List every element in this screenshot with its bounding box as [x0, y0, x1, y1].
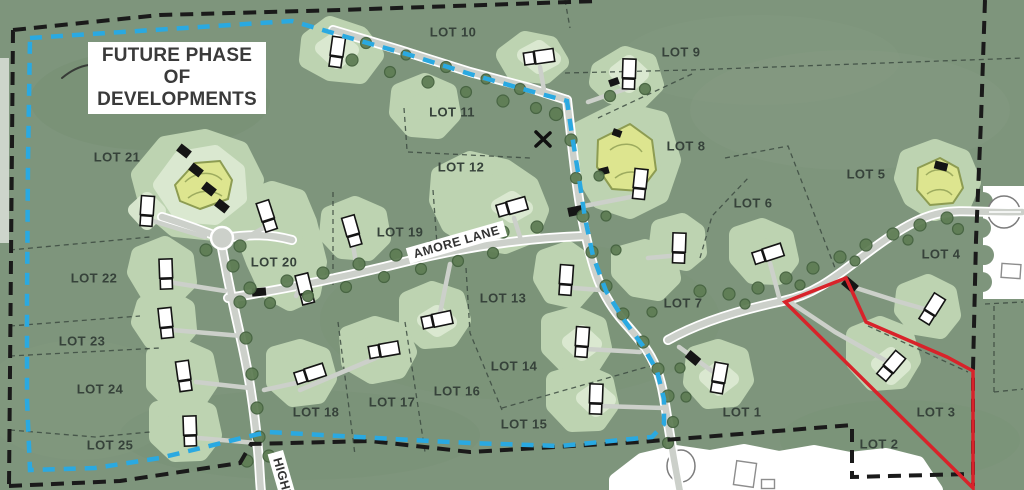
future-phase-line1: FUTURE PHASE OF: [88, 45, 266, 89]
offsite-left-strip: [0, 58, 9, 243]
lot-label-lot-24: LOT 24: [77, 382, 123, 397]
lot-label-lot-21: LOT 21: [94, 150, 140, 165]
lot-label-lot-14: LOT 14: [491, 359, 537, 374]
lot-label-lot-4: LOT 4: [922, 247, 961, 262]
lot-label-lot-10: LOT 10: [430, 25, 476, 40]
lot-label-lot-3: LOT 3: [917, 405, 956, 420]
lot-label-lot-7: LOT 7: [664, 296, 703, 311]
lot-label-lot-25: LOT 25: [87, 438, 133, 453]
lot-label-lot-6: LOT 6: [734, 196, 773, 211]
gate-icon: [536, 132, 550, 146]
lot-label-lot-2: LOT 2: [860, 437, 899, 452]
cul-de-sac: [211, 227, 233, 249]
future-phase-line2: DEVELOPMENTS: [88, 89, 266, 111]
lot-label-lot-22: LOT 22: [71, 271, 117, 286]
lot-label-lot-18: LOT 18: [293, 405, 339, 420]
lot-label-lot-23: LOT 23: [59, 334, 105, 349]
site-plan-map: FUTURE PHASE OF DEVELOPMENTS AMORE LANE …: [0, 0, 1024, 490]
lot-label-lot-20: LOT 20: [251, 255, 297, 270]
lot-label-lot-8: LOT 8: [667, 139, 706, 154]
future-phase-label: FUTURE PHASE OF DEVELOPMENTS: [88, 42, 266, 114]
lot-label-lot-17: LOT 17: [369, 395, 415, 410]
lot-label-lot-9: LOT 9: [662, 45, 701, 60]
lot-label-lot-19: LOT 19: [377, 225, 423, 240]
lot-label-lot-12: LOT 12: [438, 160, 484, 175]
lot-label-lot-11: LOT 11: [429, 105, 475, 120]
lot-label-lot-1: LOT 1: [723, 405, 762, 420]
lot-label-lot-13: LOT 13: [480, 291, 526, 306]
lot-label-lot-16: LOT 16: [434, 384, 480, 399]
lot-label-lot-5: LOT 5: [847, 167, 886, 182]
lot-label-lot-15: LOT 15: [501, 417, 547, 432]
